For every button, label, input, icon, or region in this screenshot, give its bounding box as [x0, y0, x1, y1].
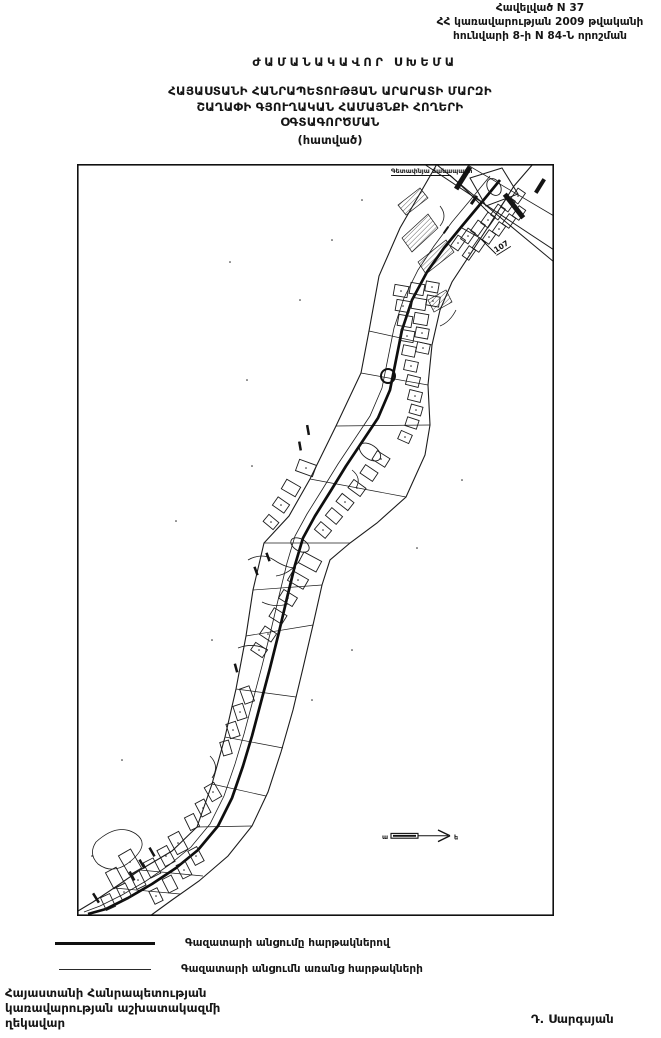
parcel-dot [406, 335, 408, 337]
speck [251, 465, 253, 467]
parcel-dot [258, 649, 260, 651]
speck [229, 261, 231, 263]
hatched-area [418, 240, 454, 274]
speck [416, 547, 418, 549]
map-border [78, 165, 553, 915]
legend-row: Գազատարի անցումը հարթակներով [55, 930, 423, 956]
parcel-dot [421, 332, 423, 334]
parcel-outline [240, 686, 255, 704]
speck [361, 199, 363, 201]
legend-row: Գազատարի անցումն առանց հարթակների [55, 956, 423, 982]
parcel-boundary [212, 784, 266, 796]
parcel-outline [360, 465, 378, 482]
signatory-block: Հայաստանի Հանրապետության կառավարության ա… [5, 986, 220, 1031]
parcel-dot [400, 290, 402, 292]
parcel-outline [413, 312, 429, 325]
parcel-dot [280, 504, 282, 506]
parcel-dot [497, 211, 499, 213]
signatory-line: Հայաստանի Հանրապետության [5, 986, 220, 1001]
annex-header: Հավելված N 37 ՀՀ կառավարության 2009 թվակ… [420, 1, 660, 43]
parcel-boundary [236, 689, 296, 697]
compass-west-label: ա [382, 833, 388, 841]
annex-header-line: Հավելված N 37 [420, 1, 660, 15]
parcel-dot [183, 869, 185, 871]
corridor-east-edge [150, 164, 533, 916]
parcel-dot [414, 395, 416, 397]
parcel-dot [457, 242, 459, 244]
parcel-boundary [114, 888, 180, 894]
signatory-line: ղեկավար [5, 1016, 220, 1031]
parcel-dot [432, 300, 434, 302]
parcel-boundary [197, 826, 252, 827]
page-subtitle: (հատված) [30, 133, 630, 147]
parcel-dot [498, 228, 500, 230]
thick-line-sample-icon [55, 942, 155, 945]
parcel-dot [305, 467, 307, 469]
speck [246, 379, 248, 381]
speck [211, 639, 213, 641]
illegible-annotation [265, 552, 270, 561]
signatory-line: կառավարության աշխատակազմի [5, 1001, 220, 1016]
page-title-line: ՕԳՏԱԳՈՐԾՄԱՆ [30, 115, 630, 131]
hatched-area [402, 214, 438, 252]
terrain-contour [352, 470, 358, 488]
speck [461, 479, 463, 481]
parcel-dot [487, 219, 489, 221]
annex-header-line: հունվարի 8-ի N 84-Ն որոշման [420, 29, 660, 43]
corridor-west-edge [78, 164, 437, 911]
illegible-annotation [534, 178, 546, 194]
parcel-dot [410, 365, 412, 367]
parcel-outline [143, 858, 161, 878]
parcel-outline [325, 508, 342, 525]
parcel-outline [105, 867, 124, 889]
parcel-boundary [225, 737, 283, 748]
legend-label: Գազատարի անցումն առանց հարթակների [181, 963, 423, 975]
parcel-dot [297, 579, 299, 581]
crossing-road-edge [466, 164, 554, 216]
annex-header-line: ՀՀ կառավարության 2009 թվականի [420, 15, 660, 29]
parcel-dot [322, 529, 324, 531]
parcel-boundary [253, 585, 322, 590]
document-page: Հավելված N 37 ՀՀ կառավարության 2009 թվակ… [0, 0, 661, 1038]
parcel-dot [404, 436, 406, 438]
gas-pipeline-thin-line [84, 176, 490, 912]
speck [331, 239, 333, 241]
parcel-dot [488, 236, 490, 238]
parcel-outline [220, 740, 233, 756]
terrain-contour [440, 206, 444, 226]
parcel-dot [415, 409, 417, 411]
parcel-outline [184, 814, 199, 831]
parcel-dot [468, 252, 470, 254]
parcel-outline [402, 345, 417, 357]
parcel-dot [177, 842, 179, 844]
parcel-dot [517, 195, 519, 197]
parcel-dot [422, 347, 424, 349]
parcel-dot [202, 807, 204, 809]
map-legend: Գազատարի անցումը հարթակներով Գազատարի ան… [55, 930, 423, 982]
parcel-dot [155, 895, 157, 897]
parcel-dot [165, 855, 167, 857]
speck [91, 855, 93, 857]
parcel-dot [404, 320, 406, 322]
speck [351, 649, 353, 651]
parcel-dot [123, 891, 125, 893]
parcel-dot [431, 286, 433, 288]
illegible-annotation [443, 226, 449, 234]
page-title: ՀԱՅԱՍՏԱՆԻ ՀԱՆՐԱՊԵՏՈՒԹՅԱՆ ԱՐԱՐԱՏԻ ՄԱՐԶԻ Շ… [30, 84, 630, 131]
parcel-dot [195, 855, 197, 857]
parcel-outline [298, 552, 321, 572]
parcel-dot [270, 521, 272, 523]
parcel-dot [467, 235, 469, 237]
illegible-annotation [306, 425, 310, 435]
parcel-outline [162, 875, 178, 893]
illegible-annotation [148, 847, 155, 857]
parcel-dot [402, 305, 404, 307]
map-canvas: Գետափնյա ճանապարհ 107 ա ե [77, 164, 554, 916]
parcel-dot [267, 633, 269, 635]
speck [175, 520, 177, 522]
parcel-outline [502, 214, 515, 228]
parcel-outline [281, 479, 300, 497]
parcel-outline [405, 375, 420, 388]
parcel-dot [239, 711, 241, 713]
parcel-outline [405, 417, 419, 429]
page-title-line: ՀԱՅԱՍՏԱՆԻ ՀԱՆՐԱՊԵՏՈՒԹՅԱՆ ԱՐԱՐԱՏԻ ՄԱՐԶԻ [30, 84, 630, 100]
parcel-dot [356, 487, 358, 489]
parcel-dot [137, 879, 139, 881]
speck [299, 299, 301, 301]
road-label: Գետափնյա ճանապարհ [391, 167, 472, 175]
parcel-dot [287, 597, 289, 599]
compass-arrow: ա ե [382, 830, 458, 842]
legend-label: Գազատարի անցումը հարթակներով [185, 937, 390, 949]
map-decoration [78, 164, 554, 916]
signature-name: Դ. Սարգսյան [531, 1012, 614, 1026]
parcel-dot [232, 729, 234, 731]
compass-east-label: ե [454, 834, 458, 842]
cadastral-map: Գետափնյա ճանապարհ 107 ա ե [77, 164, 554, 916]
illegible-annotation [234, 663, 239, 672]
parcel-dot [212, 791, 214, 793]
scheme-kicker: ԺԱՄԱՆԱԿԱՎՈՐ ՍԽԵՄԱ [25, 55, 661, 69]
terrain-contour [92, 830, 142, 870]
terrain-contour [440, 310, 456, 326]
illegible-annotation [298, 441, 302, 450]
parcel-boundary [336, 425, 430, 426]
thin-line-sample-icon [59, 969, 151, 970]
speck [311, 699, 313, 701]
parcel-dot [344, 501, 346, 503]
page-title-line: ՇԱՂԱՓԻ ԳՅՈՒՂԱԿԱՆ ՀԱՄԱՅՆՔԻ ՀՈՂԵՐԻ [30, 100, 630, 116]
road-label-leader [451, 176, 489, 213]
hatched-area [398, 188, 428, 215]
parcel-dot [129, 861, 131, 863]
speck [121, 759, 123, 761]
parcel-dot [380, 458, 382, 460]
